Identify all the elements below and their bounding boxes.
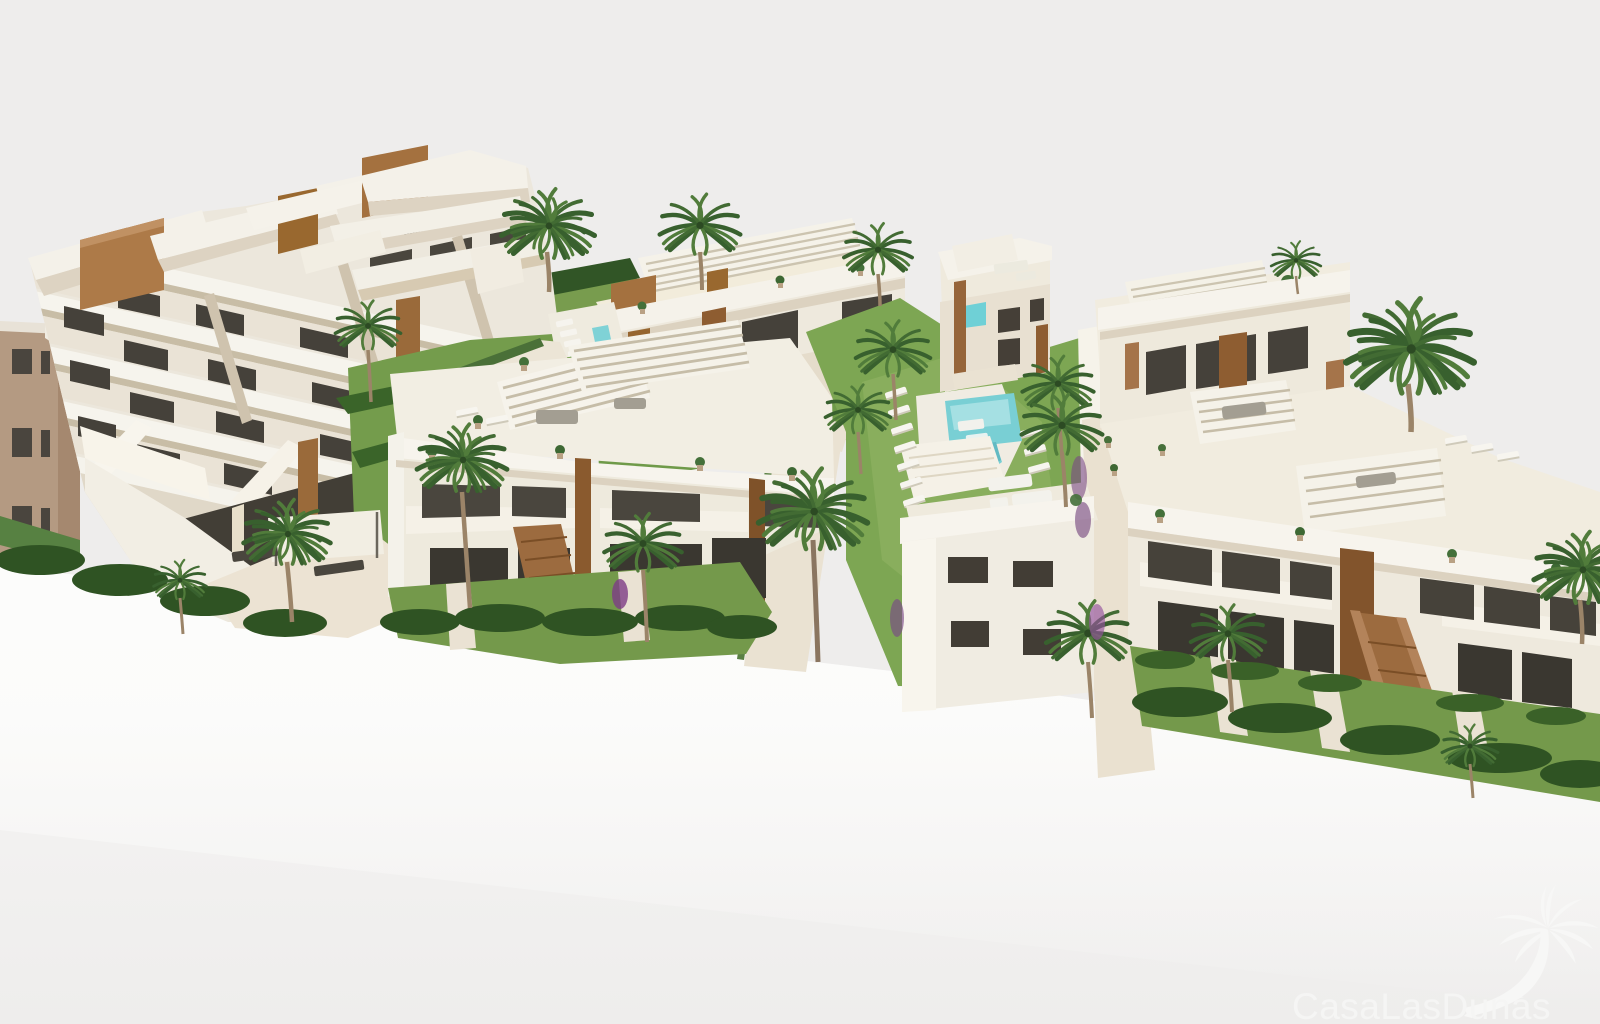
- svg-text:CasaLasDunas: CasaLasDunas: [1292, 986, 1551, 1024]
